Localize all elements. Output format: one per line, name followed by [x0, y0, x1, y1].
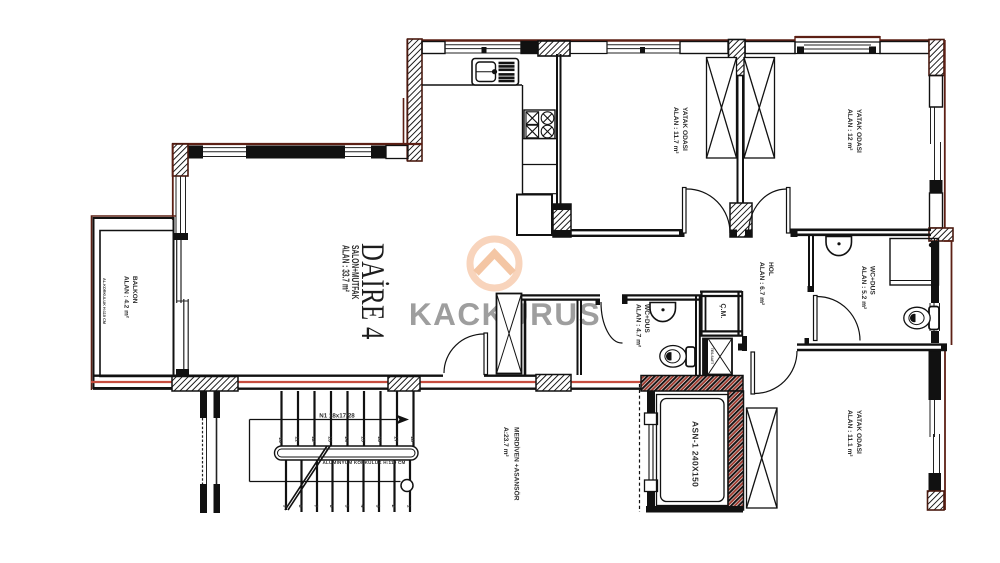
svg-text:1: 1: [406, 505, 412, 508]
svg-text:13: 13: [327, 436, 333, 442]
svg-text:18: 18: [409, 436, 415, 442]
svg-text:TES.SAFT: TES.SAFT: [710, 348, 714, 365]
svg-text:ALAN : 4.2 m²: ALAN : 4.2 m²: [123, 276, 130, 318]
svg-text:2: 2: [390, 505, 396, 508]
svg-text:A:23.7 m²: A:23.7 m²: [502, 427, 509, 457]
svg-text:YATAK ODASI: YATAK ODASI: [855, 410, 862, 454]
svg-text:ALAN : 11.1 m²: ALAN : 11.1 m²: [846, 410, 853, 457]
svg-text:15: 15: [360, 436, 366, 442]
svg-text:3: 3: [375, 505, 381, 508]
svg-text:4: 4: [359, 505, 365, 508]
svg-text:ALAN : 33.7 m²: ALAN : 33.7 m²: [340, 245, 351, 292]
svg-text:ALAN : 5.2 m²: ALAN : 5.2 m²: [860, 266, 867, 310]
svg-text:Ç.M.: Ç.M.: [719, 304, 726, 319]
svg-text:N1 18x17/28: N1 18x17/28: [319, 413, 355, 420]
svg-text:11: 11: [294, 436, 300, 442]
svg-text:YATAK ODASI: YATAK ODASI: [855, 109, 862, 153]
svg-text:WC+DUS: WC+DUS: [869, 266, 876, 295]
svg-text:ALUMINYUM KORKULUK H:110 CM: ALUMINYUM KORKULUK H:110 CM: [323, 460, 406, 465]
svg-text:7: 7: [313, 505, 319, 508]
svg-text:ALAN : 6.7 m²: ALAN : 6.7 m²: [758, 262, 765, 306]
svg-text:6: 6: [328, 505, 334, 508]
svg-text:ALAN : 12 m²: ALAN : 12 m²: [846, 109, 853, 151]
svg-text:WC+DUS: WC+DUS: [643, 304, 650, 333]
svg-text:ALAN : 11.7 m²: ALAN : 11.7 m²: [672, 107, 679, 154]
svg-text:HOL: HOL: [767, 262, 774, 276]
svg-text:5: 5: [344, 505, 350, 508]
svg-text:10: 10: [277, 437, 283, 443]
svg-text:ASN-1 240X150: ASN-1 240X150: [691, 421, 701, 487]
svg-text:MERDİVEN +ASANSÖR: MERDİVEN +ASANSÖR: [513, 427, 521, 501]
svg-text:BALKON: BALKON: [131, 276, 138, 304]
svg-text:16: 16: [376, 436, 382, 442]
svg-text:14: 14: [343, 436, 349, 442]
svg-text:17: 17: [393, 436, 399, 442]
svg-text:ALAN : 4.7 m²: ALAN : 4.7 m²: [635, 304, 642, 348]
svg-text:9: 9: [282, 505, 288, 508]
svg-text:YATAK ODASI: YATAK ODASI: [681, 107, 688, 151]
svg-text:8: 8: [297, 505, 303, 508]
svg-text:12: 12: [310, 436, 316, 442]
svg-text:AL.KORKULUK H:110 CM: AL.KORKULUK H:110 CM: [102, 278, 106, 324]
